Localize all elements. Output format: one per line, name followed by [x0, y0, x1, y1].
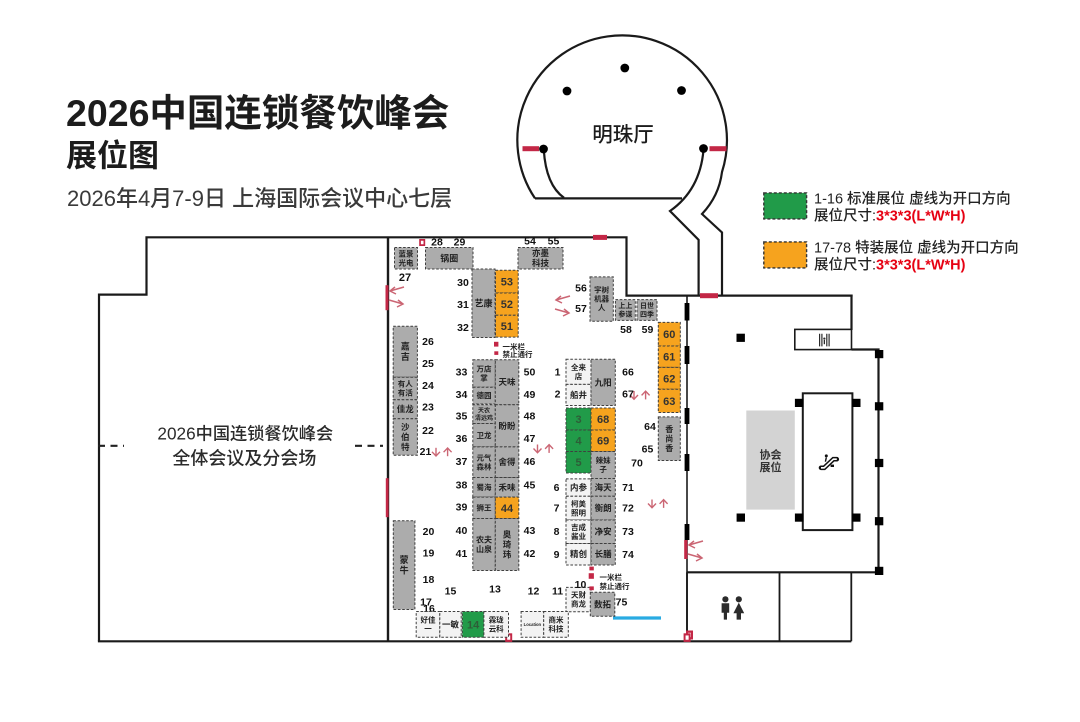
- svg-text:33: 33: [456, 367, 468, 379]
- svg-text:特: 特: [401, 441, 410, 453]
- svg-text:1: 1: [555, 367, 561, 379]
- svg-text:24: 24: [422, 380, 434, 392]
- svg-text:海天: 海天: [595, 481, 613, 493]
- svg-text:6: 6: [554, 482, 560, 494]
- svg-text:45: 45: [524, 480, 536, 492]
- svg-text:Location: Location: [524, 622, 542, 628]
- svg-text:森林: 森林: [477, 461, 492, 472]
- svg-text:68: 68: [597, 414, 609, 426]
- svg-text:7: 7: [554, 503, 560, 515]
- svg-text:60: 60: [663, 329, 675, 341]
- svg-text:70: 70: [631, 458, 643, 470]
- svg-text:净安: 净安: [595, 526, 613, 538]
- svg-text:38: 38: [456, 480, 468, 492]
- svg-text:科技: 科技: [532, 257, 550, 269]
- svg-text:29: 29: [454, 237, 466, 249]
- svg-text:禁止通行: 禁止通行: [503, 349, 533, 360]
- svg-text:九阳: 九阳: [595, 376, 612, 388]
- svg-text:72: 72: [622, 503, 634, 515]
- svg-text:云科: 云科: [489, 624, 504, 635]
- svg-text:27: 27: [399, 272, 411, 284]
- svg-text:51: 51: [501, 321, 513, 333]
- svg-text:31: 31: [457, 299, 469, 311]
- svg-text:61: 61: [663, 352, 675, 364]
- svg-text:人: 人: [598, 303, 606, 314]
- svg-text:41: 41: [456, 548, 468, 560]
- svg-text:67: 67: [622, 389, 634, 401]
- svg-text:舍得: 舍得: [499, 456, 517, 468]
- svg-text:衡朗: 衡朗: [595, 502, 612, 514]
- svg-text:65: 65: [642, 444, 654, 456]
- svg-text:数拓: 数拓: [594, 598, 612, 610]
- svg-text:佳龙: 佳龙: [397, 403, 415, 415]
- svg-text:35: 35: [456, 411, 468, 423]
- svg-text:34: 34: [456, 389, 468, 401]
- svg-text:15: 15: [445, 586, 457, 598]
- svg-text:22: 22: [422, 425, 434, 437]
- svg-text:2026中国连锁餐饮峰会: 2026中国连锁餐饮峰会: [157, 420, 333, 445]
- svg-text:掌: 掌: [480, 373, 488, 384]
- svg-text:德园: 德园: [477, 390, 492, 401]
- svg-text:43: 43: [524, 525, 536, 537]
- svg-text:47: 47: [524, 433, 536, 445]
- svg-text:39: 39: [456, 502, 468, 514]
- svg-text:山泉: 山泉: [476, 544, 492, 555]
- svg-text:2: 2: [555, 389, 561, 401]
- svg-text:内参: 内参: [570, 482, 588, 494]
- svg-text:四季: 四季: [640, 310, 654, 320]
- svg-text:吉: 吉: [401, 350, 410, 363]
- svg-text:艺康: 艺康: [474, 296, 492, 309]
- svg-text:蜀海: 蜀海: [477, 482, 492, 493]
- svg-text:26: 26: [422, 336, 434, 348]
- svg-text:展位: 展位: [760, 459, 782, 475]
- svg-text:展位图: 展位图: [66, 131, 159, 176]
- svg-text:光电: 光电: [399, 257, 414, 268]
- svg-text:11: 11: [552, 586, 563, 598]
- svg-text:香: 香: [665, 443, 673, 454]
- svg-text:55: 55: [548, 236, 560, 248]
- svg-text:40: 40: [456, 525, 468, 537]
- svg-text:2026年4月7-9日 上海国际会议中心七层: 2026年4月7-9日 上海国际会议中心七层: [67, 181, 452, 213]
- svg-text:52: 52: [501, 299, 513, 311]
- svg-text:2026中国连锁餐饮峰会: 2026中国连锁餐饮峰会: [66, 82, 449, 137]
- svg-text:19: 19: [423, 548, 435, 560]
- svg-text:21: 21: [420, 446, 432, 458]
- svg-text:玮: 玮: [503, 548, 512, 560]
- svg-text:25: 25: [422, 358, 434, 370]
- svg-text:54: 54: [524, 236, 536, 248]
- svg-text:73: 73: [622, 526, 634, 538]
- svg-text:63: 63: [663, 396, 675, 408]
- svg-text:店: 店: [575, 371, 583, 382]
- svg-text:56: 56: [575, 283, 587, 295]
- svg-text:3: 3: [575, 414, 581, 426]
- svg-text:船井: 船井: [570, 389, 588, 401]
- svg-text:53: 53: [501, 277, 513, 289]
- svg-text:44: 44: [501, 503, 514, 515]
- svg-text:46: 46: [524, 456, 536, 468]
- svg-text:18: 18: [423, 574, 435, 586]
- svg-text:69: 69: [597, 436, 609, 448]
- svg-text:展位尺寸:3*3*3(L*W*H): 展位尺寸:3*3*3(L*W*H): [814, 254, 966, 275]
- svg-text:32: 32: [457, 322, 469, 334]
- svg-text:一: 一: [424, 624, 432, 635]
- svg-text:13: 13: [489, 584, 501, 596]
- svg-text:64: 64: [644, 421, 656, 433]
- svg-text:9: 9: [554, 549, 560, 561]
- svg-text:展位尺寸:3*3*3(L*W*H): 展位尺寸:3*3*3(L*W*H): [814, 205, 966, 226]
- svg-text:锅圈: 锅圈: [440, 251, 458, 264]
- svg-text:49: 49: [524, 389, 536, 401]
- svg-text:12: 12: [528, 586, 540, 598]
- svg-text:58: 58: [620, 324, 632, 336]
- svg-text:48: 48: [524, 411, 536, 423]
- svg-text:10: 10: [575, 579, 587, 591]
- svg-text:清远鸡: 清远鸡: [475, 413, 493, 422]
- svg-text:57: 57: [575, 303, 587, 315]
- svg-text:有活: 有活: [398, 388, 413, 399]
- svg-text:28: 28: [431, 237, 443, 249]
- svg-text:66: 66: [622, 367, 634, 379]
- svg-text:14: 14: [467, 619, 480, 631]
- svg-text:酱业: 酱业: [571, 531, 586, 542]
- svg-text:全体会议及分会场: 全体会议及分会场: [172, 445, 316, 471]
- svg-text:59: 59: [642, 324, 654, 336]
- svg-text:科技: 科技: [549, 624, 564, 635]
- svg-text:商龙: 商龙: [571, 599, 586, 610]
- svg-text:8: 8: [554, 526, 560, 538]
- svg-text:狮王: 狮王: [477, 502, 492, 513]
- svg-text:明珠厅: 明珠厅: [592, 118, 654, 148]
- svg-text:50: 50: [524, 367, 536, 379]
- svg-text:盼盼: 盼盼: [499, 420, 517, 432]
- svg-text:42: 42: [524, 548, 536, 560]
- svg-text:37: 37: [456, 456, 468, 468]
- svg-text:4: 4: [575, 436, 582, 448]
- svg-text:一敏: 一敏: [442, 618, 460, 630]
- svg-text:30: 30: [457, 277, 469, 289]
- svg-text:参谋: 参谋: [618, 310, 632, 320]
- svg-text:74: 74: [622, 549, 634, 561]
- svg-text:75: 75: [616, 597, 628, 609]
- svg-text:62: 62: [663, 373, 675, 385]
- svg-text:子: 子: [599, 464, 607, 475]
- svg-text:照明: 照明: [571, 507, 586, 518]
- svg-text:71: 71: [622, 482, 634, 494]
- svg-text:23: 23: [422, 402, 434, 414]
- svg-text:20: 20: [423, 526, 435, 538]
- svg-text:精创: 精创: [570, 548, 587, 560]
- svg-text:禁止通行: 禁止通行: [600, 581, 630, 592]
- svg-text:牛: 牛: [400, 564, 409, 577]
- svg-text:禾味: 禾味: [499, 481, 517, 493]
- svg-text:36: 36: [456, 433, 468, 445]
- svg-text:长膳: 长膳: [595, 548, 613, 560]
- svg-text:5: 5: [575, 457, 581, 469]
- svg-text:卫龙: 卫龙: [477, 430, 492, 441]
- svg-text:天味: 天味: [499, 376, 517, 388]
